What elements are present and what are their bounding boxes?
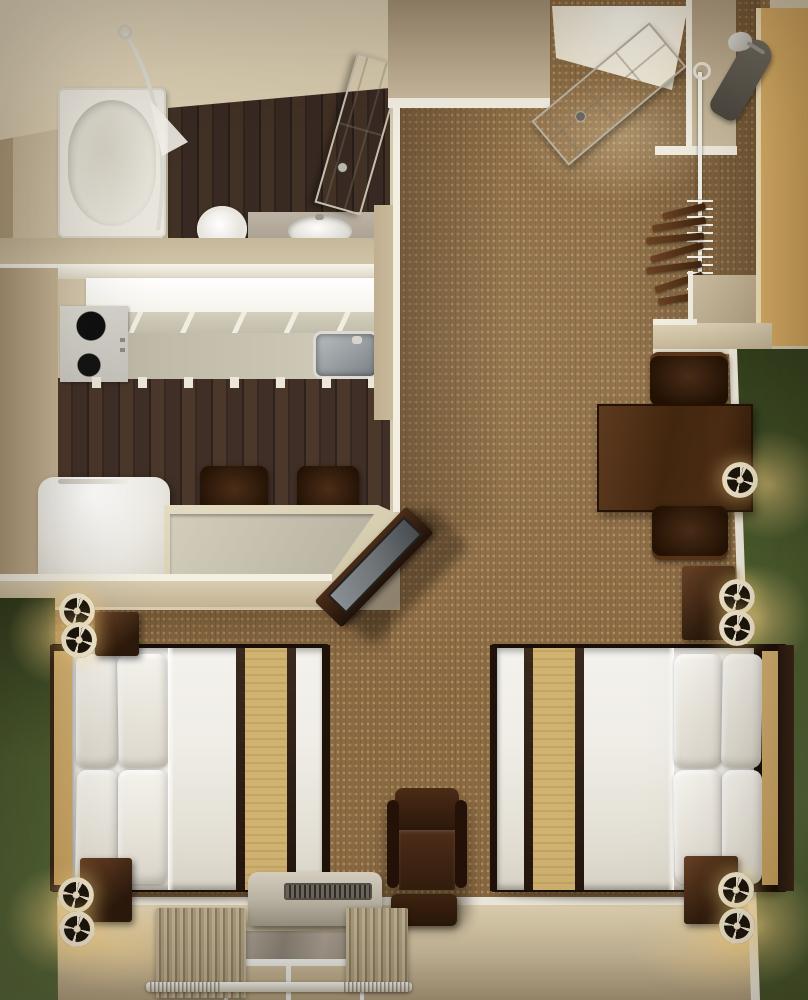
bathroom-door-knob	[338, 163, 347, 172]
entry-wall-trim	[388, 98, 550, 108]
range-dials	[120, 336, 125, 352]
bathroom-wall-trim	[0, 264, 394, 279]
right-bed-scarf-edge	[575, 648, 584, 890]
curtain-rings-right	[344, 982, 410, 992]
closet-rod-hook	[693, 62, 711, 80]
wall-sconce	[722, 462, 758, 498]
kitchen-sink	[313, 331, 379, 379]
armchair-back	[395, 788, 459, 832]
left-duvet-fold	[168, 648, 174, 890]
right-bed-scarf-edge	[524, 648, 533, 890]
ac-vent-grille	[284, 883, 372, 900]
shelf-item	[652, 217, 706, 232]
right-bed-pillow	[721, 654, 763, 769]
left-bed-runner	[245, 648, 287, 890]
table-lamp	[718, 872, 754, 908]
right-headboard	[778, 645, 794, 891]
shower-curtain-rod	[70, 20, 290, 240]
armchair-arm-right	[455, 800, 467, 888]
sink-faucet-kitchen	[352, 336, 362, 344]
armchair-seat	[399, 830, 455, 890]
shelf-item	[646, 261, 702, 275]
upper-cabinets	[86, 278, 390, 312]
sink-faucet	[315, 214, 324, 220]
base-cabinet-handles	[92, 377, 388, 388]
entry-wall	[388, 0, 550, 100]
right-headboard-panel	[762, 651, 778, 885]
table-lamp	[59, 911, 95, 947]
closet-wall-bottom-trim	[655, 146, 737, 155]
nightstand-left-top	[95, 612, 139, 656]
partition-wall-trim	[393, 100, 400, 512]
left-bed-scarf-edge	[236, 648, 245, 890]
right-bed-runner	[533, 648, 575, 890]
armchair-arm-left	[387, 800, 399, 888]
closet-bottom-wall-upper	[692, 275, 756, 327]
left-bed-scarf-edge	[287, 648, 296, 890]
left-bed-pillow	[76, 654, 118, 768]
refrigerator	[38, 477, 170, 584]
closet-left-wall-trim	[686, 0, 692, 152]
table-lamp	[58, 877, 94, 913]
left-bed-footboard	[322, 645, 330, 891]
table-lamp	[719, 610, 755, 646]
entry-door-knob	[576, 112, 585, 121]
kitchen-bottom-wall-trim	[0, 574, 332, 581]
closet-bottom-wall-trim-left	[688, 271, 693, 325]
closet-bottom-wall	[653, 323, 772, 351]
dining-table	[597, 404, 753, 512]
range-cooktop	[60, 306, 128, 382]
curtain-rings-left	[150, 982, 220, 992]
dining-chair-top	[650, 352, 728, 406]
refrigerator-handles	[58, 479, 128, 484]
right-bed-pillow	[674, 654, 722, 768]
left-bed-pillow	[117, 654, 169, 769]
bathroom-kitchen-block	[0, 0, 400, 610]
floor-plan-render	[0, 0, 808, 1000]
left-headboard-panel	[54, 651, 72, 885]
dining-chair-bottom	[652, 506, 728, 560]
shelf-item	[650, 242, 704, 264]
curtain-right	[346, 908, 408, 990]
table-lamp	[719, 908, 755, 944]
table-lamp	[61, 622, 97, 658]
